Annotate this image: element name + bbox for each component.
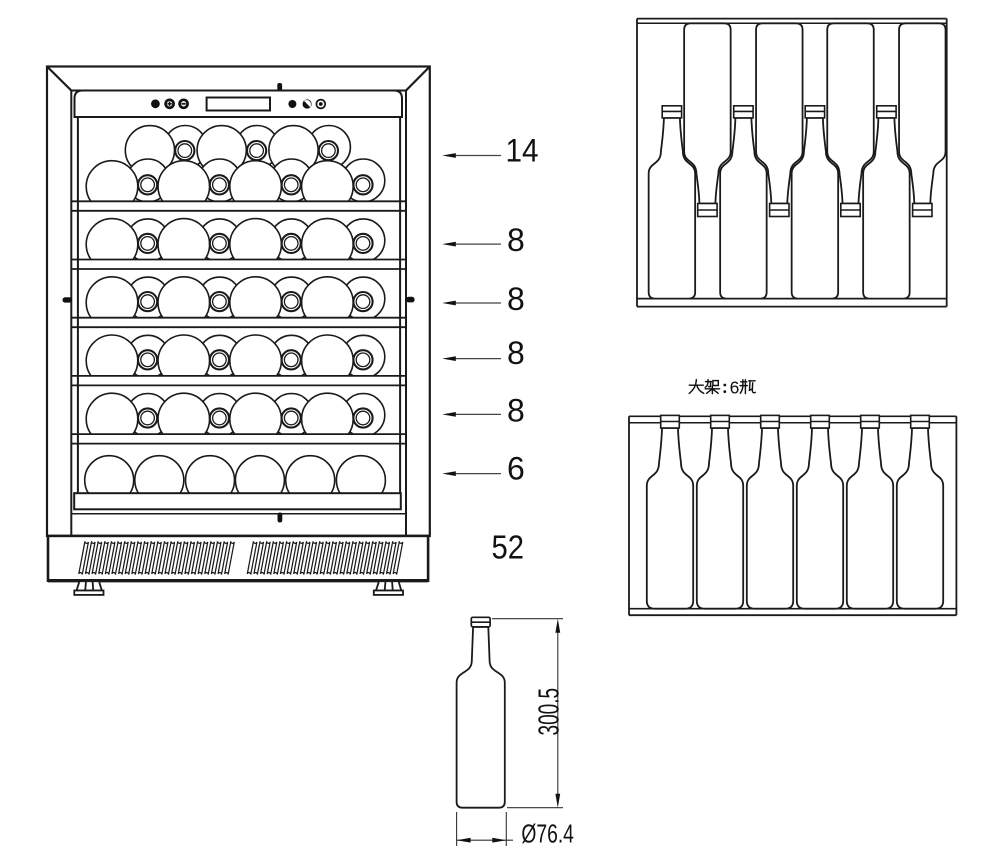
svg-text:6: 6: [507, 450, 525, 486]
svg-text:300.5: 300.5: [534, 688, 566, 736]
svg-text:8: 8: [507, 281, 525, 317]
svg-text:Ø76.4: Ø76.4: [521, 819, 574, 849]
svg-text:6: 6: [730, 378, 740, 398]
svg-text:14: 14: [506, 132, 539, 168]
svg-text:52: 52: [492, 529, 525, 566]
svg-text:8: 8: [507, 222, 525, 258]
svg-text:8: 8: [507, 393, 525, 429]
svg-text:8: 8: [507, 335, 525, 371]
